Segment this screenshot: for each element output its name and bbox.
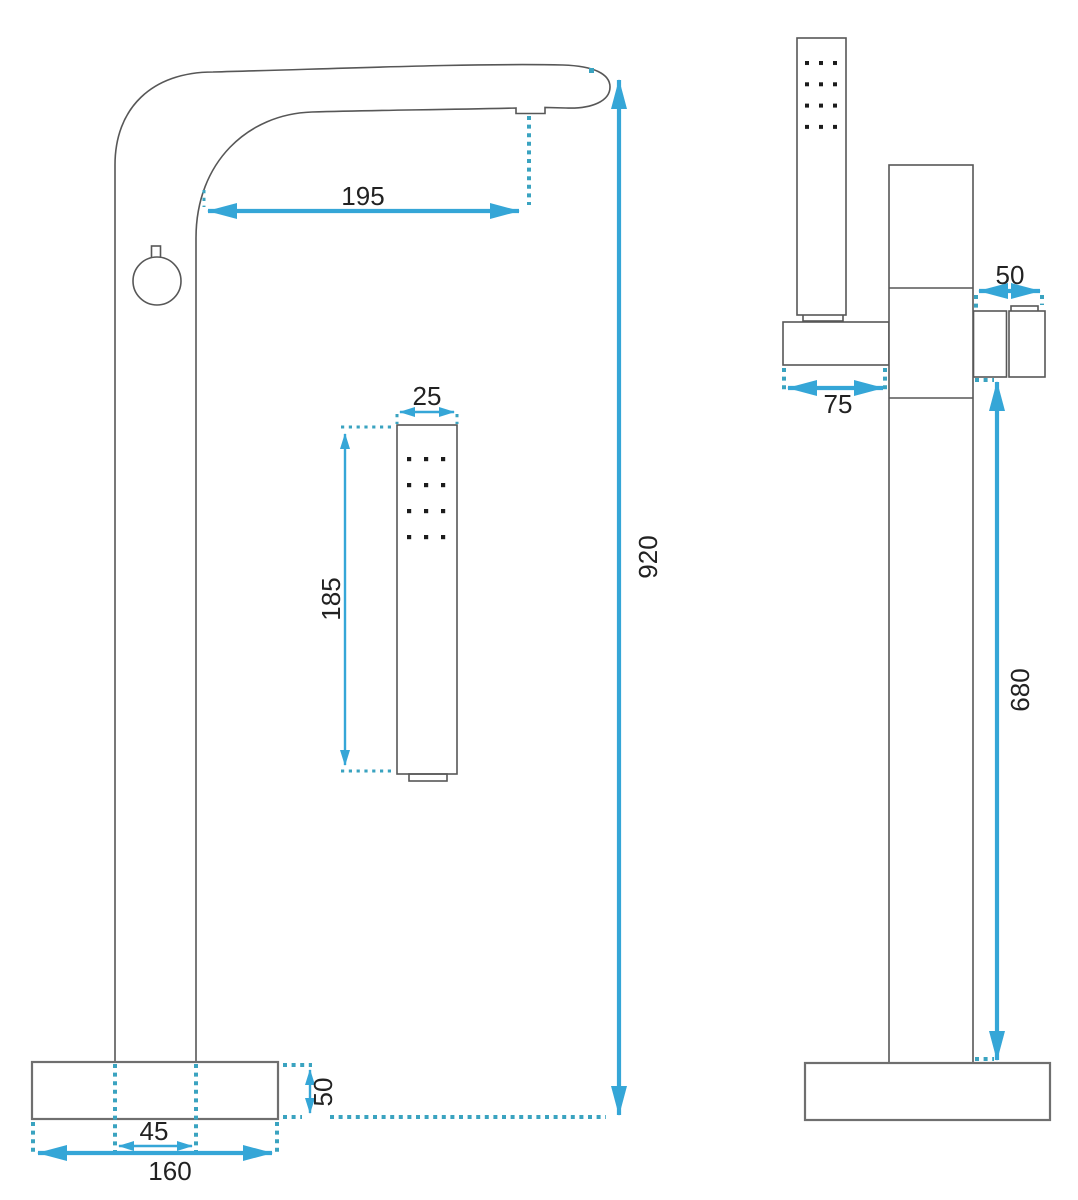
- column-side: [889, 165, 973, 1063]
- dim-spout-depth: 50: [976, 260, 1042, 309]
- dim-spout-height: 680: [975, 380, 1035, 1060]
- dim-column-width-label: 45: [140, 1116, 169, 1146]
- dim-spout-reach: 195: [204, 116, 529, 211]
- technical-drawing-page: 195 920 25 185 50: [0, 0, 1078, 1200]
- dim-base-thickness: 50: [283, 1065, 338, 1117]
- hand-shower-front-nozzles: [405, 455, 448, 543]
- dim-spout-reach-label: 195: [341, 181, 384, 211]
- dim-hand-shower-width-label: 25: [413, 381, 442, 411]
- spout-side: [974, 306, 1046, 377]
- dim-holder-depth-label: 75: [824, 389, 853, 419]
- hand-shower-front: [397, 425, 457, 781]
- dim-hand-shower-height-label: 185: [316, 577, 346, 620]
- hand-shower-side: [797, 38, 846, 321]
- base-side: [805, 1063, 1050, 1120]
- dim-spout-depth-label: 50: [996, 260, 1025, 290]
- dim-holder-depth: 75: [784, 368, 885, 419]
- dim-overall-height: 920: [330, 68, 663, 1117]
- hand-shower-side-nozzles: [803, 59, 838, 131]
- hand-shower-front-outlet: [409, 774, 447, 781]
- bath-mixer-technical-drawing: 195 920 25 185 50: [0, 0, 1078, 1200]
- dim-hand-shower-height: 185: [316, 427, 394, 771]
- shower-holder-bracket: [783, 322, 889, 365]
- dim-overall-height-ext-tick: [589, 68, 594, 73]
- handle-knob: [133, 257, 181, 305]
- dim-base-thickness-label: 50: [308, 1078, 338, 1107]
- dim-hand-shower-width: 25: [397, 381, 457, 424]
- faucet-body-outline: [115, 65, 610, 1062]
- dim-base-width-label: 160: [148, 1156, 191, 1186]
- dim-overall-height-label: 920: [633, 535, 663, 578]
- spout-side-cap: [1009, 311, 1045, 377]
- base-front: [32, 1062, 278, 1119]
- spout-side-neck: [974, 311, 1007, 377]
- side-view: [783, 38, 1050, 1120]
- dim-spout-height-label: 680: [1005, 668, 1035, 711]
